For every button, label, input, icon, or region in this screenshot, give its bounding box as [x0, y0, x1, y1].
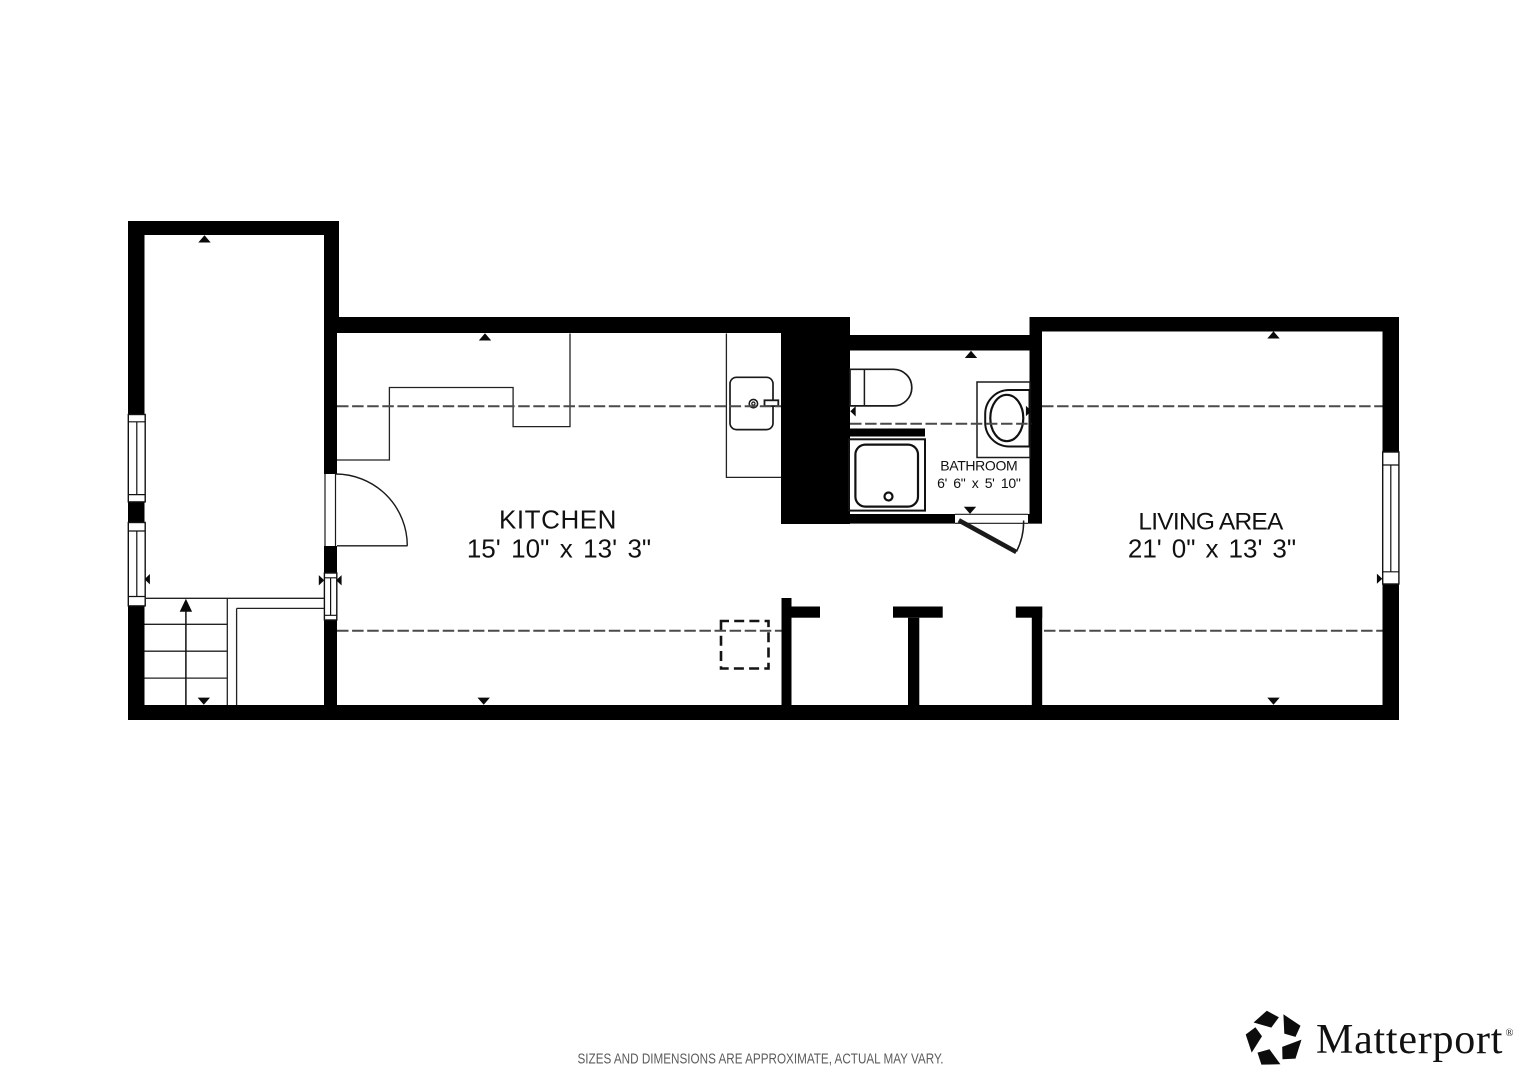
svg-text:LIVING AREA: LIVING AREA [1138, 509, 1284, 536]
svg-text:Matterport: Matterport [1316, 1017, 1503, 1063]
svg-text:15' 10" x 13' 3": 15' 10" x 13' 3" [467, 534, 651, 564]
svg-text:BATHROOM: BATHROOM [940, 458, 1017, 474]
svg-text:KITCHEN: KITCHEN [499, 505, 617, 535]
svg-text:6' 6" x 5' 10": 6' 6" x 5' 10" [937, 475, 1021, 491]
svg-text:®: ® [1506, 1028, 1514, 1039]
svg-text:SIZES AND DIMENSIONS ARE APPRO: SIZES AND DIMENSIONS ARE APPROXIMATE, AC… [578, 1051, 944, 1068]
svg-text:21' 0" x 13' 3": 21' 0" x 13' 3" [1128, 534, 1296, 564]
